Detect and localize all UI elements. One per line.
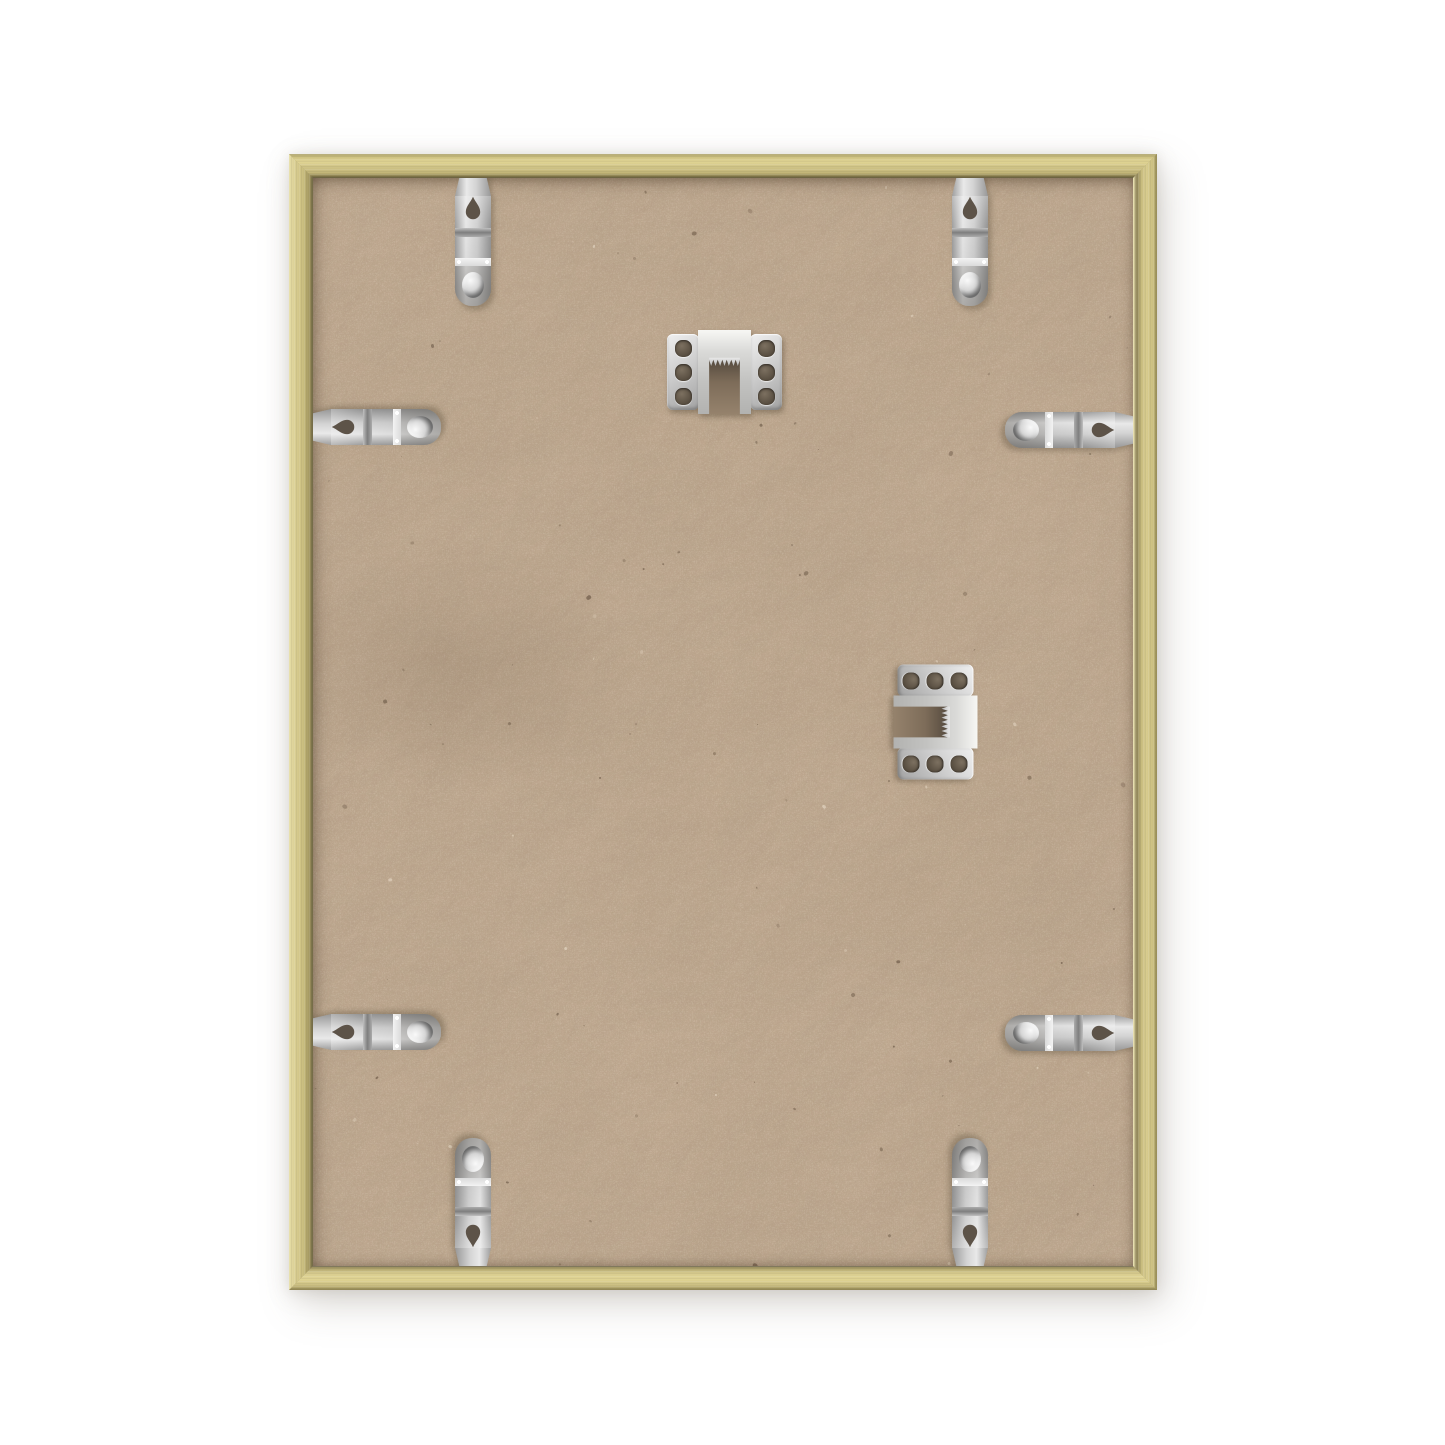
teardrop-hole: [329, 1024, 357, 1040]
flex-tab-left: [305, 409, 441, 445]
teardrop-hole: [962, 1222, 978, 1250]
hanger-wing: [750, 334, 782, 410]
teardrop-hole: [1089, 422, 1117, 438]
hanger-screw-hole: [951, 672, 968, 689]
flex-tab-top: [952, 170, 988, 306]
hanger-screw-hole: [675, 340, 692, 357]
sawtooth-hanger-2: [894, 665, 978, 780]
hanger-screw-hole: [927, 672, 944, 689]
flex-tab-bend-crease: [952, 228, 988, 237]
frame-edge-right: [1133, 154, 1157, 1290]
flex-tab-highlight-band: [393, 1014, 401, 1050]
flex-tab-highlight-band: [455, 258, 491, 266]
mounting-hardware-layer: [289, 154, 1157, 1290]
flex-tab-bottom: [455, 1138, 491, 1274]
hanger-screw-hole: [951, 755, 968, 772]
teardrop-hole: [1089, 1025, 1117, 1041]
hanger-screw-hole: [758, 364, 775, 381]
hanger-screw-hole: [927, 755, 944, 772]
hanger-wing: [898, 665, 974, 697]
teardrop-hole: [962, 194, 978, 222]
flex-tab-highlight-band: [455, 1178, 491, 1186]
flex-tab-bend-crease: [455, 1207, 491, 1216]
flex-tab-stamped-dimple: [462, 272, 484, 298]
flex-tab-bottom: [952, 1138, 988, 1274]
hanger-screw-hole: [758, 340, 775, 357]
hanger-wing: [667, 334, 699, 410]
hanger-screw-hole: [903, 755, 920, 772]
hanger-screw-hole: [758, 388, 775, 405]
picture-frame-back: [289, 154, 1157, 1290]
flex-tab-left: [305, 1014, 441, 1050]
hanger-screw-hole: [675, 364, 692, 381]
flex-tab-bend-crease: [363, 409, 372, 445]
flex-tab-stamped-dimple: [1013, 419, 1039, 441]
flex-tab-highlight-band: [1045, 412, 1053, 448]
flex-tab-stamped-dimple: [407, 1021, 433, 1043]
flex-tab-highlight-band: [952, 258, 988, 266]
flex-tab-bend-crease: [363, 1014, 372, 1050]
flex-tab-stamped-dimple: [1013, 1022, 1039, 1044]
flex-tab-stamped-dimple: [462, 1146, 484, 1172]
hanger-screw-hole: [903, 672, 920, 689]
frame-edge-bottom: [289, 1266, 1157, 1290]
flex-tab-highlight-band: [1045, 1015, 1053, 1051]
flex-tab-stamped-dimple: [407, 416, 433, 438]
frame-edge-left: [289, 154, 313, 1290]
frame-edge-top: [289, 154, 1157, 178]
flex-tab-top: [455, 170, 491, 306]
flex-tab-bend-crease: [1074, 1015, 1083, 1051]
flex-tab-stamped-dimple: [959, 1146, 981, 1172]
flex-tab-right: [1005, 412, 1141, 448]
flex-tab-bend-crease: [1074, 412, 1083, 448]
flex-tab-right: [1005, 1015, 1141, 1051]
flex-tab-highlight-band: [393, 409, 401, 445]
hanger-wing: [898, 748, 974, 780]
teardrop-hole: [329, 419, 357, 435]
sawtooth-hanger-1: [667, 330, 782, 414]
flex-tab-highlight-band: [952, 1178, 988, 1186]
teardrop-hole: [465, 1222, 481, 1250]
product-photo-scene: [0, 0, 1445, 1445]
flex-tab-bend-crease: [952, 1207, 988, 1216]
teardrop-hole: [465, 194, 481, 222]
flex-tab-bend-crease: [455, 228, 491, 237]
hanger-screw-hole: [675, 388, 692, 405]
flex-tab-stamped-dimple: [959, 272, 981, 298]
